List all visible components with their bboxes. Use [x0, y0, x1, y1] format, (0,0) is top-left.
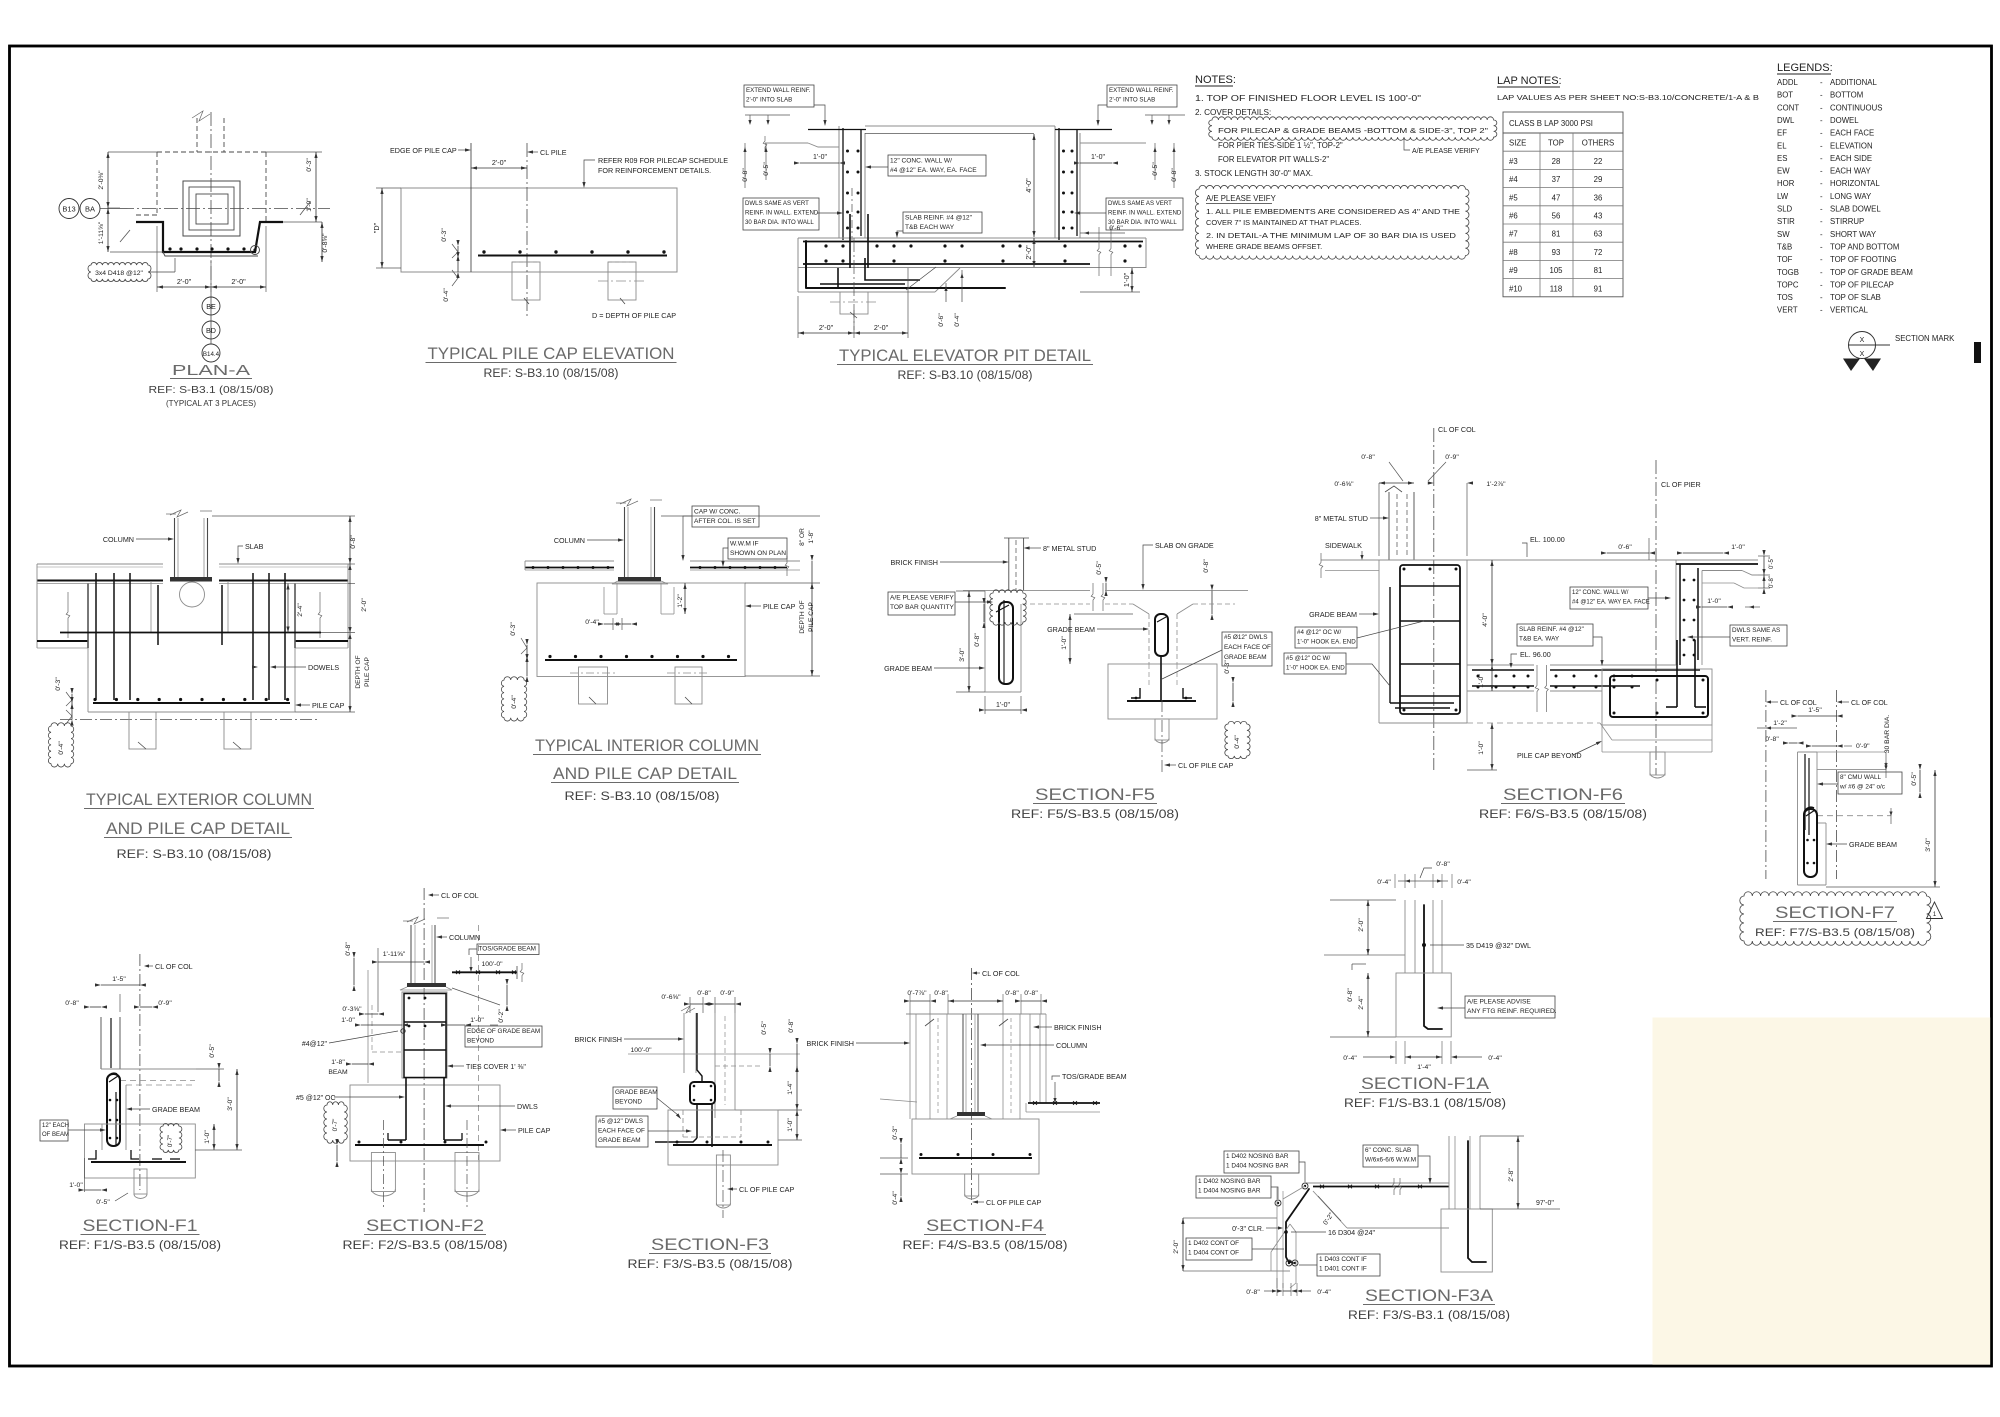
svg-text:NOTES:: NOTES:	[1195, 74, 1236, 86]
svg-text:0'-5": 0'-5"	[1152, 162, 1159, 176]
svg-text:3x4 D418 @12": 3x4 D418 @12"	[95, 270, 143, 277]
svg-text:4'-0": 4'-0"	[1482, 613, 1489, 627]
svg-text:#10: #10	[1509, 284, 1523, 293]
svg-text:0'-8": 0'-8"	[697, 990, 711, 997]
svg-text:SECTION-F4: SECTION-F4	[926, 1217, 1044, 1235]
svg-text:CL OF PILE CAP: CL OF PILE CAP	[1178, 761, 1233, 770]
svg-text:EACH SIDE: EACH SIDE	[1830, 154, 1872, 163]
svg-text:STIR: STIR	[1777, 217, 1795, 226]
svg-text:2'-4": 2'-4"	[297, 603, 304, 617]
svg-text:4'-0": 4'-0"	[1024, 178, 1033, 193]
svg-text:w/ #6 @ 24" o/c: w/ #6 @ 24" o/c	[1839, 784, 1886, 791]
svg-text:#5 @12" OC: #5 @12" OC	[296, 1095, 336, 1102]
svg-text:1'-5": 1'-5"	[112, 976, 126, 983]
svg-text:0'-3": 0'-3"	[306, 158, 313, 172]
svg-text:0'-8": 0'-8"	[788, 1019, 795, 1033]
svg-text:W.W.M IF: W.W.M IF	[730, 540, 759, 547]
svg-text:0'-5": 0'-5"	[209, 1044, 216, 1058]
svg-text:72: 72	[1594, 248, 1603, 257]
svg-text:-: -	[1820, 255, 1823, 264]
svg-text:0'-7⅞": 0'-7⅞"	[907, 990, 927, 997]
svg-text:0'-4": 0'-4"	[511, 695, 518, 709]
svg-text:1'-2": 1'-2"	[677, 594, 684, 608]
svg-text:-: -	[1820, 230, 1823, 239]
svg-text:12" CONC. WALL W/: 12" CONC. WALL W/	[1572, 590, 1629, 596]
svg-text:FOR PILECAP & GRADE BEAMS -BOT: FOR PILECAP & GRADE BEAMS -BOTTOM & SIDE…	[1218, 126, 1488, 135]
svg-text:2'-0⅜": 2'-0⅜"	[98, 170, 105, 190]
svg-text:EDGE OF PILE CAP: EDGE OF PILE CAP	[390, 146, 457, 155]
svg-text:GRADE BEAM: GRADE BEAM	[1047, 625, 1095, 634]
svg-text:REF: S-B3.1 (08/15/08): REF: S-B3.1 (08/15/08)	[149, 384, 274, 396]
svg-text:CL OF COL: CL OF COL	[1780, 700, 1817, 707]
svg-text:FOR PIER TIES-SIDE 1 ½", TOP-2: FOR PIER TIES-SIDE 1 ½", TOP-2"	[1218, 141, 1343, 150]
svg-text:0'-8": 0'-8"	[1203, 559, 1210, 573]
svg-text:2'-0": 2'-0"	[177, 277, 192, 286]
svg-text:STIRRUP: STIRRUP	[1830, 217, 1864, 226]
svg-text:BEAM: BEAM	[328, 1069, 348, 1076]
svg-text:COVER 7" IS MAINTAINED AT THAT: COVER 7" IS MAINTAINED AT THAT PLACES.	[1206, 218, 1361, 227]
svg-text:PLAN-A: PLAN-A	[172, 362, 250, 379]
svg-text:6" CONC. SLAB: 6" CONC. SLAB	[1365, 1147, 1411, 1154]
svg-text:2'-0": 2'-0"	[819, 323, 834, 332]
svg-text:#8: #8	[1509, 248, 1518, 257]
svg-text:EL. 96.00: EL. 96.00	[1520, 650, 1551, 659]
svg-text:3'-0": 3'-0"	[1925, 838, 1932, 852]
svg-text:1'-0": 1'-0"	[306, 198, 313, 212]
svg-text:GRADE BEAM: GRADE BEAM	[1849, 840, 1897, 849]
svg-text:0'-8": 0'-8"	[974, 633, 981, 647]
svg-text:2'-8": 2'-8"	[1508, 1168, 1515, 1182]
svg-text:0'-9": 0'-9"	[1445, 454, 1459, 461]
svg-text:TOS/GRADE BEAM: TOS/GRADE BEAM	[1062, 1072, 1127, 1081]
svg-text:EL: EL	[1777, 141, 1787, 150]
svg-text:REF: S-B3.10 (08/15/08): REF: S-B3.10 (08/15/08)	[117, 849, 272, 861]
svg-text:DWLS SAME AS: DWLS SAME AS	[1732, 627, 1780, 634]
svg-text:1. TOP OF FINISHED FLOOR LEVEL: 1. TOP OF FINISHED FLOOR LEVEL IS 100'-0…	[1195, 94, 1421, 103]
svg-text:36: 36	[1594, 193, 1603, 202]
svg-text:ELEVATION: ELEVATION	[1830, 141, 1873, 150]
svg-text:PILE CAP BEYOND: PILE CAP BEYOND	[1517, 751, 1582, 760]
svg-text:2'-0": 2'-0"	[1024, 245, 1033, 260]
svg-text:35 D419 @32" DWL: 35 D419 @32" DWL	[1466, 941, 1531, 950]
svg-text:1'-2": 1'-2"	[1773, 720, 1787, 727]
svg-text:0'-8": 0'-8"	[65, 1000, 79, 1007]
svg-text:0'-5": 0'-5"	[1911, 772, 1918, 786]
svg-text:#3: #3	[1509, 157, 1518, 166]
svg-text:1'-0": 1'-0"	[1707, 598, 1721, 605]
svg-text:TOF: TOF	[1777, 255, 1793, 264]
svg-text:TOP OF PILECAP: TOP OF PILECAP	[1830, 280, 1894, 289]
svg-text:SLAB DOWEL: SLAB DOWEL	[1830, 205, 1881, 214]
svg-text:-: -	[1820, 167, 1823, 176]
svg-text:X: X	[1860, 351, 1865, 358]
svg-text:1'-0": 1'-0"	[996, 702, 1010, 709]
svg-text:GRADE BEAM: GRADE BEAM	[1309, 610, 1357, 619]
svg-text:CL OF COL: CL OF COL	[1438, 425, 1476, 434]
svg-text:1 D404 CONT OF: 1 D404 CONT OF	[1188, 1250, 1239, 1257]
svg-text:DWL: DWL	[1777, 116, 1795, 125]
svg-text:COLUMN: COLUMN	[554, 536, 585, 545]
svg-text:-: -	[1820, 116, 1823, 125]
svg-text:LAP VALUES AS PER SHEET NO:S-B: LAP VALUES AS PER SHEET NO:S-B3.10/CONCR…	[1497, 93, 1759, 102]
svg-text:TOP BAR QUANTITY: TOP BAR QUANTITY	[890, 604, 954, 611]
svg-text:TOP OF FOOTING: TOP OF FOOTING	[1830, 255, 1896, 264]
svg-text:0'-3": 0'-3"	[510, 622, 517, 636]
svg-text:OF BEAM: OF BEAM	[42, 1132, 69, 1138]
svg-text:REF: F2/S-B3.5 (08/15/08): REF: F2/S-B3.5 (08/15/08)	[343, 1240, 508, 1252]
svg-text:BEYOND: BEYOND	[615, 1099, 642, 1106]
svg-text:47: 47	[1552, 193, 1561, 202]
svg-text:REFER R09 FOR PILECAP SCHEDULE: REFER R09 FOR PILECAP SCHEDULE	[598, 156, 728, 165]
svg-text:63: 63	[1594, 230, 1603, 239]
svg-text:1'-0": 1'-0"	[1061, 636, 1068, 650]
svg-text:#5 @12" DWLS: #5 @12" DWLS	[598, 1118, 643, 1125]
svg-text:DWLS SAME AS VERT: DWLS SAME AS VERT	[1108, 200, 1172, 207]
svg-text:#5 @12" OC W/: #5 @12" OC W/	[1286, 655, 1331, 662]
svg-text:SECTION-F3A: SECTION-F3A	[1365, 1287, 1493, 1305]
svg-text:HORIZONTAL: HORIZONTAL	[1830, 179, 1880, 188]
svg-text:22: 22	[1594, 157, 1603, 166]
svg-text:0'-5": 0'-5"	[761, 1021, 768, 1035]
svg-text:#4: #4	[1509, 175, 1518, 184]
svg-text:0'-8": 0'-8"	[1765, 736, 1779, 743]
svg-text:LW: LW	[1777, 192, 1789, 201]
svg-text:BRICK FINISH: BRICK FINISH	[890, 558, 938, 567]
svg-text:-: -	[1820, 78, 1823, 87]
svg-text:-: -	[1820, 179, 1823, 188]
svg-text:1'-0" HOOK EA. END: 1'-0" HOOK EA. END	[1286, 665, 1345, 672]
svg-text:97'-0": 97'-0"	[1536, 1200, 1554, 1207]
svg-text:CL OF PILE CAP: CL OF PILE CAP	[986, 1198, 1041, 1207]
svg-text:TYPICAL EXTERIOR COLUMN: TYPICAL EXTERIOR COLUMN	[86, 791, 312, 809]
svg-text:0'-6": 0'-6"	[938, 313, 945, 327]
svg-text:SECTION-F2: SECTION-F2	[366, 1217, 484, 1235]
svg-text:CL OF COL: CL OF COL	[1851, 700, 1888, 707]
svg-text:81: 81	[1552, 230, 1561, 239]
svg-text:EACH FACE OF: EACH FACE OF	[598, 1128, 645, 1135]
svg-text:-: -	[1820, 217, 1823, 226]
svg-text:W/6x6-6/6 W.W.M: W/6x6-6/6 W.W.M	[1365, 1157, 1416, 1164]
svg-text:REF: S-B3.10 (08/15/08): REF: S-B3.10 (08/15/08)	[898, 370, 1033, 382]
svg-text:30 BAR DIA. INTO WALL: 30 BAR DIA. INTO WALL	[745, 219, 814, 226]
svg-text:AFTER COL. IS SET: AFTER COL. IS SET	[694, 518, 756, 525]
svg-text:CL OF COL: CL OF COL	[982, 969, 1020, 978]
svg-text:30 BAR DIA.: 30 BAR DIA.	[1884, 715, 1891, 754]
svg-text:-: -	[1820, 243, 1823, 252]
svg-text:0'-7": 0'-7"	[332, 1119, 339, 1132]
svg-text:REF: F1/S-B3.1 (08/15/08): REF: F1/S-B3.1 (08/15/08)	[1344, 1098, 1506, 1110]
svg-text:CL OF PIER: CL OF PIER	[1661, 480, 1701, 489]
svg-text:T&B EA. WAY: T&B EA. WAY	[1519, 636, 1560, 643]
svg-text:CONTINUOUS: CONTINUOUS	[1830, 103, 1882, 112]
svg-text:1'-0": 1'-0"	[69, 1182, 83, 1189]
svg-text:TOP OF SLAB: TOP OF SLAB	[1830, 293, 1881, 302]
svg-text:1'-0": 1'-0"	[1478, 741, 1485, 755]
svg-text:1 D402 NOSING BAR: 1 D402 NOSING BAR	[1198, 1178, 1261, 1185]
svg-text:REF: F5/S-B3.5 (08/15/08): REF: F5/S-B3.5 (08/15/08)	[1011, 809, 1179, 821]
svg-text:BRICK FINISH: BRICK FINISH	[806, 1039, 854, 1048]
svg-text:REF: F1/S-B3.5 (08/15/08): REF: F1/S-B3.5 (08/15/08)	[59, 1240, 221, 1252]
svg-text:1'-0": 1'-0"	[813, 154, 827, 161]
svg-text:1'-0" HOOK EA. END: 1'-0" HOOK EA. END	[1297, 639, 1356, 646]
svg-text:100'-0": 100'-0"	[630, 1047, 652, 1054]
svg-text:AND PILE CAP DETAIL: AND PILE CAP DETAIL	[553, 765, 737, 783]
svg-text:SECTION-F7: SECTION-F7	[1775, 904, 1895, 922]
svg-text:A/E PLEASE VERIFY: A/E PLEASE VERIFY	[1412, 148, 1480, 155]
svg-text:EACH FACE OF: EACH FACE OF	[1224, 644, 1271, 651]
svg-text:12" CONC. WALL W/: 12" CONC. WALL W/	[890, 157, 952, 164]
svg-text:TYPICAL INTERIOR COLUMN: TYPICAL INTERIOR COLUMN	[535, 737, 759, 755]
svg-text:EF: EF	[1777, 129, 1787, 138]
svg-text:#4 @12" EA. WAY, EA. FACE: #4 @12" EA. WAY, EA. FACE	[890, 167, 977, 174]
svg-text:PILE CAP: PILE CAP	[518, 1126, 551, 1135]
svg-text:SECTION MARK: SECTION MARK	[1895, 334, 1955, 343]
svg-text:BRICK FINISH: BRICK FINISH	[1054, 1023, 1102, 1032]
svg-text:#5: #5	[1509, 193, 1518, 202]
svg-text:2'-4": 2'-4"	[1358, 996, 1365, 1010]
svg-text:0'-6": 0'-6"	[1618, 544, 1632, 551]
svg-text:0'-6": 0'-6"	[1109, 225, 1123, 232]
svg-text:EL. 100.00: EL. 100.00	[1530, 535, 1565, 544]
svg-text:1'-2⅞": 1'-2⅞"	[1486, 481, 1506, 488]
svg-text:0'-5": 0'-5"	[1769, 557, 1775, 569]
svg-text:ES: ES	[1777, 154, 1787, 163]
svg-text:COLUMN: COLUMN	[449, 933, 480, 942]
svg-text:8" OR: 8" OR	[799, 528, 806, 546]
svg-text:TOS: TOS	[1777, 293, 1793, 302]
svg-text:0'-5": 0'-5"	[1096, 561, 1103, 575]
svg-text:2'-0" INTO SLAB: 2'-0" INTO SLAB	[1109, 97, 1155, 104]
svg-text:37: 37	[1552, 175, 1561, 184]
svg-text:-: -	[1820, 192, 1823, 201]
svg-text:0'-5": 0'-5"	[96, 1199, 110, 1206]
svg-text:SECTION-F3: SECTION-F3	[651, 1236, 769, 1254]
svg-text:(TYPICAL AT 3 PLACES): (TYPICAL AT 3 PLACES)	[166, 399, 256, 408]
svg-text:-: -	[1820, 280, 1823, 289]
svg-text:HOR: HOR	[1777, 179, 1795, 188]
svg-text:EDGE OF GRADE BEAM: EDGE OF GRADE BEAM	[467, 1028, 540, 1035]
svg-text:8" CMU WALL: 8" CMU WALL	[1840, 774, 1882, 781]
svg-text:DEPTH OF: DEPTH OF	[355, 655, 362, 688]
svg-text:LONG WAY: LONG WAY	[1830, 192, 1872, 201]
svg-text:CL OF COL: CL OF COL	[155, 962, 193, 971]
svg-text:0'-8": 0'-8"	[1005, 990, 1019, 997]
svg-text:PILE CAP: PILE CAP	[312, 701, 345, 710]
svg-text:0'-8": 0'-8"	[1171, 168, 1178, 182]
svg-text:TOPC: TOPC	[1777, 280, 1799, 289]
svg-text:0'-2": 0'-2"	[498, 1009, 505, 1023]
svg-text:0'-4": 0'-4"	[954, 313, 961, 327]
svg-text:COLUMN: COLUMN	[103, 535, 134, 544]
svg-text:3'-0": 3'-0"	[959, 648, 966, 662]
svg-text:A/E PLEASE ADVISE: A/E PLEASE ADVISE	[1467, 998, 1531, 1005]
svg-text:#5 Ø12" DWLS: #5 Ø12" DWLS	[1224, 634, 1267, 641]
svg-text:TOP: TOP	[1548, 139, 1564, 148]
svg-text:1'-4": 1'-4"	[787, 1081, 794, 1095]
svg-text:1'-0": 1'-0"	[341, 1017, 355, 1024]
svg-text:EACH WAY: EACH WAY	[1830, 167, 1872, 176]
svg-text:8" METAL STUD: 8" METAL STUD	[1043, 544, 1096, 553]
svg-text:1'-8": 1'-8"	[331, 1059, 345, 1066]
svg-text:1'-4": 1'-4"	[1417, 1064, 1431, 1071]
svg-text:EXTEND WALL REINF.: EXTEND WALL REINF.	[746, 87, 811, 94]
svg-text:118: 118	[1550, 284, 1562, 293]
svg-text:-: -	[1820, 154, 1823, 163]
svg-text:TOS/GRADE BEAM: TOS/GRADE BEAM	[479, 946, 536, 953]
svg-text:0'-9": 0'-9"	[1856, 743, 1870, 750]
svg-text:0'-4": 0'-4"	[1457, 879, 1471, 886]
svg-text:1'-0": 1'-0"	[787, 1118, 794, 1132]
svg-text:0'-3" CLR.: 0'-3" CLR.	[1232, 1226, 1264, 1233]
svg-text:LEGENDS:: LEGENDS:	[1777, 62, 1833, 74]
svg-text:BA: BA	[85, 205, 95, 214]
svg-text:DOWEL: DOWEL	[1830, 116, 1859, 125]
svg-text:1'-0": 1'-0"	[470, 1017, 484, 1024]
svg-text:#4 @12" EA. WAY EA. FACE: #4 @12" EA. WAY EA. FACE	[1572, 599, 1650, 605]
svg-text:SECTION-F5: SECTION-F5	[1035, 786, 1155, 804]
svg-text:1'-0": 1'-0"	[1091, 154, 1105, 161]
svg-text:1 D402 NOSING BAR: 1 D402 NOSING BAR	[1226, 1153, 1289, 1160]
svg-text:SHORT WAY: SHORT WAY	[1830, 230, 1877, 239]
svg-text:TIES COVER 1' ⅜": TIES COVER 1' ⅜"	[466, 1064, 526, 1071]
svg-text:0'-4": 0'-4"	[585, 619, 599, 626]
svg-text:TOGB: TOGB	[1777, 268, 1799, 277]
svg-text:2'-0": 2'-0"	[361, 598, 368, 612]
svg-text:0'-8": 0'-8"	[1361, 454, 1375, 461]
svg-text:T&B: T&B	[1777, 243, 1792, 252]
svg-text:0'-4": 0'-4"	[1343, 1055, 1357, 1062]
svg-text:VERT. REINF.: VERT. REINF.	[1732, 637, 1772, 644]
svg-text:SLAB ON GRADE: SLAB ON GRADE	[1155, 541, 1214, 550]
svg-text:GRADE BEAM: GRADE BEAM	[615, 1089, 658, 1096]
svg-text:T&B EACH WAY: T&B EACH WAY	[905, 224, 955, 231]
svg-text:43: 43	[1594, 212, 1603, 221]
svg-text:SECTION-F1: SECTION-F1	[83, 1217, 198, 1235]
svg-text:A/E PLEASE VEIFY: A/E PLEASE VEIFY	[1206, 194, 1277, 203]
svg-text:-: -	[1820, 103, 1823, 112]
svg-text:TOP OF GRADE BEAM: TOP OF GRADE BEAM	[1830, 268, 1913, 277]
svg-text:PILE CAP: PILE CAP	[808, 602, 815, 632]
svg-text:2. COVER DETAILS:: 2. COVER DETAILS:	[1195, 108, 1271, 117]
svg-text:0'-8": 0'-8"	[1347, 988, 1354, 1002]
svg-text:-: -	[1820, 141, 1823, 150]
svg-text:2'-0": 2'-0"	[1173, 1240, 1180, 1254]
svg-text:SLD: SLD	[1777, 205, 1793, 214]
svg-text:0'-4": 0'-4"	[1488, 1055, 1502, 1062]
svg-text:REF: F4/S-B3.5 (08/15/08): REF: F4/S-B3.5 (08/15/08)	[903, 1240, 1068, 1252]
svg-text:0'-8": 0'-8"	[1246, 1289, 1260, 1296]
svg-text:0'-6⅝": 0'-6⅝"	[1334, 481, 1354, 488]
svg-text:VERTICAL: VERTICAL	[1830, 306, 1869, 315]
svg-text:0'-3": 0'-3"	[441, 228, 448, 242]
svg-text:DWLS: DWLS	[517, 1102, 538, 1111]
svg-text:2. IN DETAIL-A THE MINIMUM LAP: 2. IN DETAIL-A THE MINIMUM LAP OF 30 BAR…	[1206, 231, 1456, 240]
svg-text:0'-7": 0'-7"	[167, 1135, 174, 1147]
svg-text:ADDITIONAL: ADDITIONAL	[1830, 78, 1877, 87]
svg-text:REINF. IN WALL. EXTEND: REINF. IN WALL. EXTEND	[745, 209, 819, 216]
svg-text:2'-0" INTO SLAB: 2'-0" INTO SLAB	[746, 97, 792, 104]
svg-text:1'-0": 1'-0"	[1122, 272, 1131, 287]
svg-text:CLASS B LAP 3000 PSI: CLASS B LAP 3000 PSI	[1509, 119, 1593, 128]
svg-text:0'-4": 0'-4"	[892, 1191, 899, 1205]
svg-text:COLUMN: COLUMN	[1056, 1041, 1087, 1050]
svg-text:1'-0": 1'-0"	[1731, 544, 1745, 551]
svg-text:BOT: BOT	[1777, 91, 1793, 100]
svg-text:0'-4": 0'-4"	[1317, 1289, 1331, 1296]
svg-text:1'-0": 1'-0"	[1478, 674, 1485, 688]
svg-text:0'-5": 0'-5"	[763, 162, 770, 176]
svg-text:GRADE BEAM: GRADE BEAM	[1224, 654, 1267, 661]
svg-text:EW: EW	[1777, 167, 1790, 176]
svg-text:0'-9": 0'-9"	[720, 990, 734, 997]
svg-text:ADDL: ADDL	[1777, 78, 1798, 87]
svg-text:REF: F3/S-B3.5 (08/15/08): REF: F3/S-B3.5 (08/15/08)	[628, 1259, 793, 1271]
svg-text:CL OF COL: CL OF COL	[441, 891, 479, 900]
svg-text:#4 @12" OC W/: #4 @12" OC W/	[1297, 629, 1342, 636]
svg-text:REF: S-B3.10 (08/15/08): REF: S-B3.10 (08/15/08)	[484, 368, 619, 380]
svg-text:B13: B13	[62, 205, 75, 214]
svg-text:1'-0": 1'-0"	[204, 1130, 211, 1144]
svg-text:2'-0": 2'-0"	[231, 277, 246, 286]
svg-text:0'-8": 0'-8"	[934, 990, 948, 997]
svg-text:1 D404 NOSING BAR: 1 D404 NOSING BAR	[1226, 1163, 1289, 1170]
svg-text:CL PILE: CL PILE	[540, 148, 567, 157]
svg-text:0'-3": 0'-3"	[55, 677, 62, 691]
svg-text:#9: #9	[1509, 266, 1518, 275]
svg-text:GRADE BEAM: GRADE BEAM	[598, 1137, 641, 1144]
svg-text:BRICK FINISH: BRICK FINISH	[574, 1035, 622, 1044]
svg-text:#7: #7	[1509, 230, 1518, 239]
svg-text:0'-9": 0'-9"	[158, 1000, 172, 1007]
svg-text:SLAB REINF. #4 @12": SLAB REINF. #4 @12"	[905, 214, 973, 221]
svg-text:-: -	[1820, 91, 1823, 100]
svg-text:1 D403 CONT IF: 1 D403 CONT IF	[1319, 1256, 1367, 1263]
svg-text:0'-3⅝": 0'-3⅝"	[342, 1006, 362, 1013]
svg-text:0'-8": 0'-8"	[1436, 861, 1450, 868]
svg-text:1'-11⅝": 1'-11⅝"	[383, 951, 406, 958]
svg-text:GRADE BEAM: GRADE BEAM	[152, 1105, 200, 1114]
svg-text:TYPICAL PILE CAP ELEVATION: TYPICAL PILE CAP ELEVATION	[428, 345, 675, 363]
svg-text:D = DEPTH OF PILE CAP: D = DEPTH OF PILE CAP	[592, 311, 676, 320]
svg-text:B14.4: B14.4	[203, 351, 220, 358]
svg-text:REF: F3/S-B3.1 (08/15/08): REF: F3/S-B3.1 (08/15/08)	[1348, 1310, 1510, 1322]
svg-text:REF: F6/S-B3.5 (08/15/08): REF: F6/S-B3.5 (08/15/08)	[1479, 809, 1647, 821]
svg-text:-: -	[1820, 129, 1823, 138]
svg-text:12" EACH: 12" EACH	[42, 1123, 69, 1129]
svg-text:SLAB REINF. #4 @12": SLAB REINF. #4 @12"	[1519, 626, 1584, 633]
svg-text:0'-8": 0'-8"	[1769, 576, 1775, 588]
svg-text:AND PILE CAP DETAIL: AND PILE CAP DETAIL	[106, 820, 290, 838]
svg-text:0'-8": 0'-8"	[1024, 990, 1038, 997]
svg-text:REF: F7/S-B3.5 (08/15/08): REF: F7/S-B3.5 (08/15/08)	[1755, 927, 1915, 939]
svg-text:1'-5": 1'-5"	[1808, 707, 1822, 714]
svg-text:81: 81	[1594, 266, 1603, 275]
svg-text:1 D402 CONT OF: 1 D402 CONT OF	[1188, 1240, 1239, 1247]
svg-text:SIZE: SIZE	[1509, 139, 1526, 148]
svg-text:2'-0": 2'-0"	[492, 158, 507, 167]
svg-text:EACH FACE: EACH FACE	[1830, 129, 1874, 138]
svg-text:BEYOND: BEYOND	[467, 1038, 494, 1045]
svg-text:SHOWN ON PLAN: SHOWN ON PLAN	[730, 550, 786, 557]
svg-text:EXTEND WALL REINF.: EXTEND WALL REINF.	[1109, 87, 1174, 94]
svg-text:WHERE GRADE BEAMS OFFSET.: WHERE GRADE BEAMS OFFSET.	[1206, 242, 1322, 251]
svg-text:93: 93	[1552, 248, 1561, 257]
svg-text:BOTTOM: BOTTOM	[1830, 91, 1863, 100]
svg-text:CAP W/ CONC.: CAP W/ CONC.	[694, 508, 741, 515]
svg-text:FOR ELEVATOR PIT WALLS-2": FOR ELEVATOR PIT WALLS-2"	[1218, 155, 1329, 164]
svg-text:DWLS SAME AS VERT: DWLS SAME AS VERT	[745, 200, 809, 207]
svg-text:PILE CAP: PILE CAP	[364, 657, 371, 687]
